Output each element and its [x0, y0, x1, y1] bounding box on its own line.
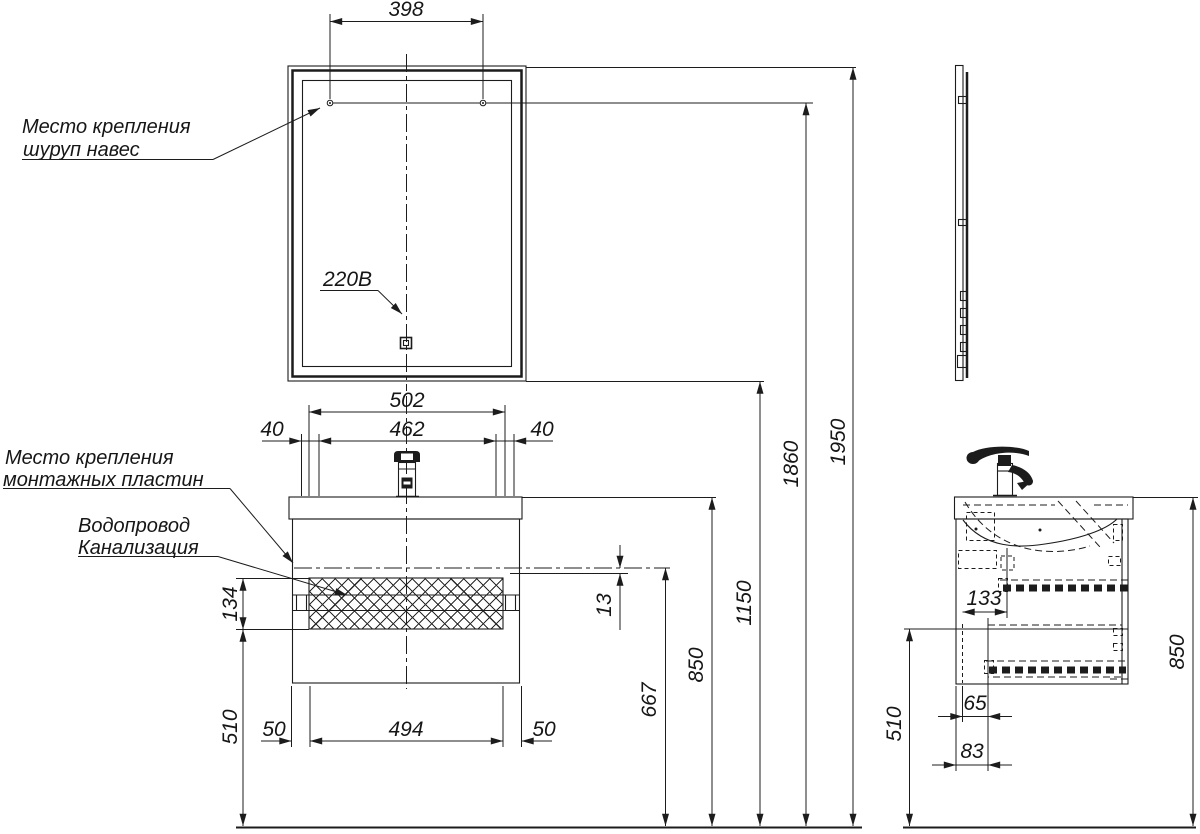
installation-drawing-page: Место крепления шуруп навес Место крепле… — [0, 0, 1200, 834]
dimension-1150 — [526, 382, 764, 827]
label-plumbing-line1: Водопровод — [78, 515, 190, 537]
dim-text-83: 83 — [960, 740, 984, 763]
faucet-side — [967, 447, 1034, 496]
dim-text-13: 13 — [593, 593, 616, 617]
label-power-220v: 220В — [322, 268, 372, 291]
dim-text-1950: 1950 — [827, 418, 850, 465]
dim-text-1860: 1860 — [780, 440, 803, 487]
dim-text-850-side: 850 — [1166, 634, 1189, 669]
dim-text-850-front: 850 — [685, 647, 708, 682]
dim-text-462: 462 — [389, 418, 424, 441]
dimension-40-left — [262, 434, 319, 496]
dimension-134 — [236, 579, 309, 630]
dim-text-502: 502 — [389, 389, 424, 412]
mirror-side-view — [956, 66, 968, 381]
label-mirror-mount-line1: Место крепления — [22, 116, 191, 138]
dim-text-510-side: 510 — [883, 706, 906, 741]
dim-text-134: 134 — [219, 586, 242, 621]
leader-plumbing — [78, 557, 347, 596]
label-plates-line1: Место крепления — [5, 447, 174, 469]
label-mirror-mount-line2: шуруп навес — [23, 139, 140, 161]
dimension-510-side — [904, 629, 956, 826]
dim-text-40-right: 40 — [530, 418, 554, 441]
label-plates-line2: монтажных пластин — [3, 469, 204, 491]
dim-text-50-left: 50 — [262, 718, 286, 741]
mirror-front-view — [288, 54, 856, 391]
dim-text-1150: 1150 — [733, 580, 756, 625]
dim-text-494: 494 — [388, 718, 423, 741]
leader-power — [320, 291, 402, 315]
installation-drawing: Место крепления шуруп навес Место крепле… — [0, 0, 1200, 834]
vanity-side-view — [955, 447, 1134, 684]
dim-text-40-left: 40 — [260, 418, 284, 441]
dim-text-133: 133 — [966, 587, 1001, 610]
dim-text-398: 398 — [388, 0, 423, 21]
label-plumbing-line2: Канализация — [78, 537, 199, 559]
dim-text-65: 65 — [963, 692, 987, 715]
dim-text-510-front: 510 — [219, 709, 242, 744]
dim-text-50-right: 50 — [532, 718, 556, 741]
vanity-front-view — [289, 396, 670, 689]
dim-text-667: 667 — [638, 681, 661, 717]
